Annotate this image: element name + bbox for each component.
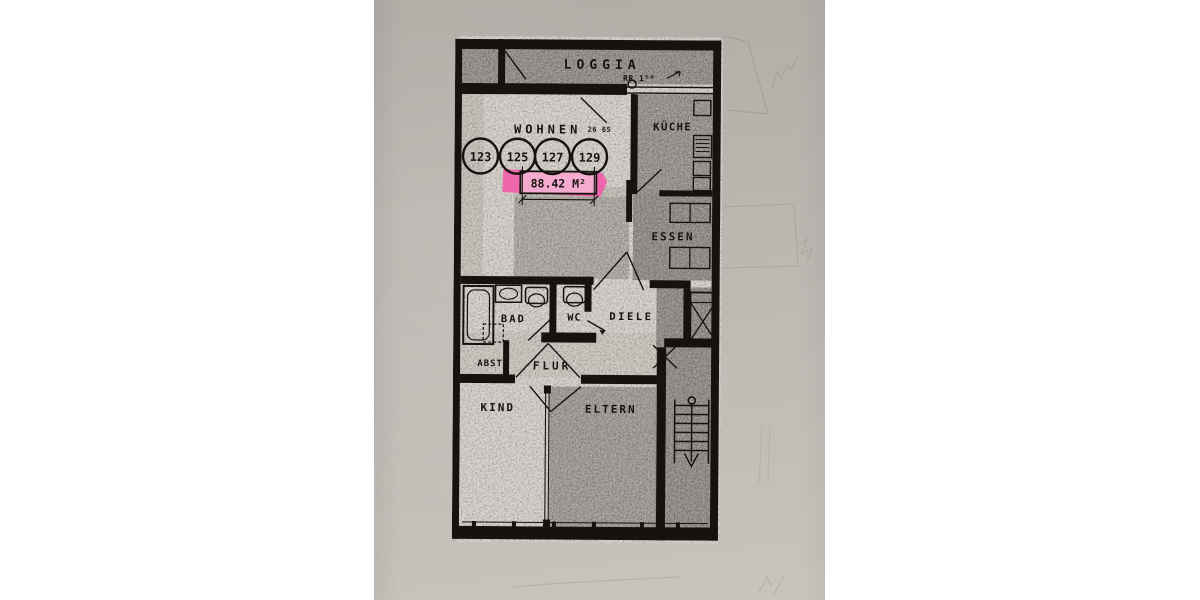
label-wohnen: WOHNEN <box>514 122 581 136</box>
pencil-scribble-bottom <box>759 576 784 594</box>
label-kueche: KÜCHE <box>653 119 692 133</box>
floorplan-drawing: 88.42 M² 123 125 127 129 LOGGIA RR 1⁵⁰ <box>452 36 724 544</box>
unit-number-125: 125 <box>507 150 529 164</box>
floorplan-photo: 88.42 M² 123 125 127 129 LOGGIA RR 1⁵⁰ <box>374 0 825 600</box>
label-diele: DIELE <box>609 311 653 323</box>
label-flur: FLUR <box>533 359 572 372</box>
area-value: 88.42 M² <box>531 176 586 190</box>
label-loggia: LOGGIA <box>564 58 641 74</box>
label-bad: BAD <box>501 313 526 325</box>
label-wc: WC <box>567 313 581 324</box>
unit-number-123: 123 <box>470 150 492 164</box>
pencil-marks-mid <box>759 425 770 483</box>
label-kind: KIND <box>480 401 515 414</box>
unit-number-129: 129 <box>579 151 601 165</box>
unit-number-127: 127 <box>542 150 564 164</box>
label-eltern: ELTERN <box>585 403 637 416</box>
label-dimension: 26 65 <box>588 126 612 134</box>
label-rain-pipe: RR 1⁵⁰ <box>623 74 655 83</box>
label-essen: ESSEN <box>651 230 694 243</box>
pencil-scribble-top <box>772 57 797 88</box>
page: 88.42 M² 123 125 127 129 LOGGIA RR 1⁵⁰ <box>0 0 1200 600</box>
pencil-scribble-right <box>798 239 812 262</box>
pencil-trapezoid <box>724 36 768 114</box>
label-abst: ABST <box>477 359 503 369</box>
pencil-line-bottom <box>514 577 679 587</box>
pencil-rectangle <box>721 204 798 268</box>
